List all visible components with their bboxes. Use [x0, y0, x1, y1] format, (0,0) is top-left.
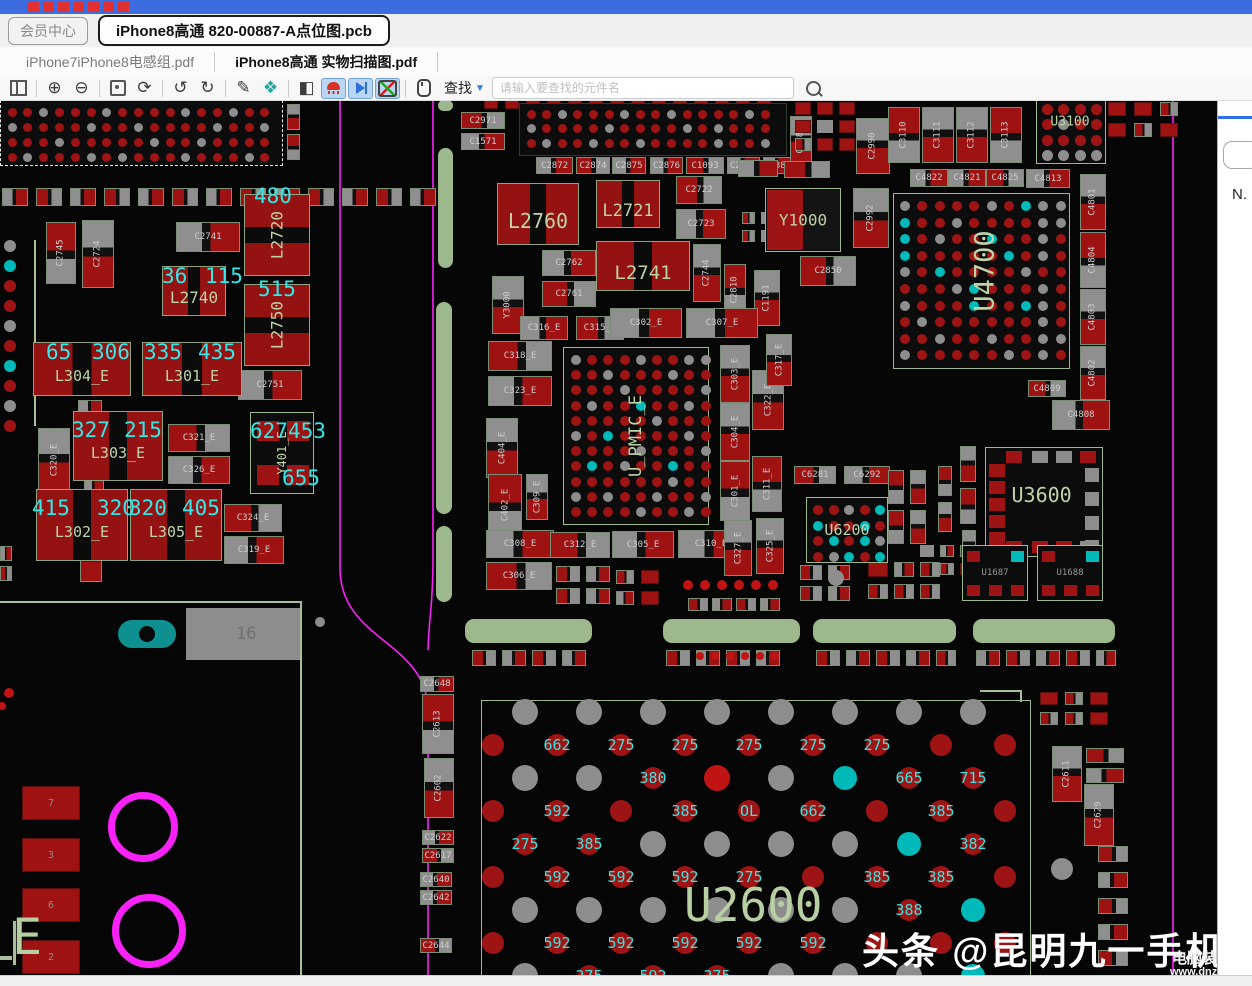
capacitor[interactable] [888, 510, 904, 544]
bga-ball [652, 477, 662, 487]
bga-ball [652, 492, 662, 502]
app-window: 会员中心 iPhone8高通 820-00887-A点位图.pcb iPhone… [0, 0, 1252, 986]
capacitor-C321_E[interactable]: C321_E [168, 424, 230, 452]
capacitor[interactable] [172, 188, 198, 206]
bga-ball [1038, 301, 1048, 311]
capacitor[interactable] [616, 570, 634, 584]
bga-ball [698, 110, 707, 119]
capacitor-C305_E[interactable]: C305_E [612, 531, 674, 558]
bga-ball [482, 932, 504, 954]
bga-ball [813, 505, 823, 515]
bga-ball [1056, 301, 1066, 311]
capacitor-C2971[interactable]: C2971 [461, 112, 505, 129]
watermark-sub2: www.dnzp [1170, 966, 1217, 975]
via [4, 420, 16, 432]
capacitor-C2617[interactable]: C2617 [422, 848, 454, 863]
bga-ball [875, 536, 885, 546]
chevron-down-icon[interactable]: ▼ [475, 83, 485, 94]
ball-value: 275 [735, 736, 762, 754]
bga-ball [701, 477, 711, 487]
bga-ball [668, 416, 678, 426]
capacitor-C2990[interactable]: C2990 [856, 118, 890, 174]
via [828, 570, 844, 586]
bga-ball [668, 401, 678, 411]
mirror-icon[interactable]: ◧ [294, 78, 319, 99]
capacitor-C317_E[interactable]: C317_E [766, 334, 792, 386]
bga-ball [952, 301, 962, 311]
chip-pad [1056, 451, 1072, 463]
capacitor-C303_E[interactable]: C303_E [720, 345, 750, 403]
capacitor[interactable] [800, 586, 822, 601]
capacitor[interactable] [472, 650, 496, 666]
capacitor-C2875[interactable]: C2875 [612, 157, 646, 174]
capacitor-C4822[interactable]: C4822 [910, 169, 948, 187]
capacitor-C4808[interactable]: C4808 [1052, 400, 1110, 430]
capacitor[interactable] [586, 566, 610, 582]
capacitor[interactable] [760, 598, 780, 611]
capacitor[interactable] [868, 584, 888, 599]
capacitor-C4802[interactable]: C4802 [1080, 346, 1106, 400]
capacitor[interactable] [910, 510, 926, 544]
capacitor[interactable] [960, 488, 976, 524]
bga-ball [1042, 104, 1053, 115]
capacitor[interactable] [976, 650, 1000, 666]
measure-value: 435 [198, 340, 236, 364]
capacitor[interactable] [920, 584, 940, 599]
bga-ball [620, 385, 630, 395]
teal-pad [118, 620, 176, 648]
bga-ball [844, 552, 854, 562]
bga-ball [651, 139, 660, 148]
bga-ball [952, 201, 962, 211]
bga-ball [482, 800, 504, 822]
bga-ball [23, 123, 32, 132]
capacitor-C2992[interactable]: C2992 [853, 188, 889, 248]
bga-ball [994, 734, 1016, 756]
bga-ball [1056, 284, 1066, 294]
bga-ball [542, 110, 551, 119]
bga-ball [603, 477, 613, 487]
capacitor[interactable] [1006, 650, 1030, 666]
capacitor-C3110[interactable]: C3110 [888, 107, 920, 163]
chip-pad [967, 551, 980, 562]
capacitor[interactable] [206, 188, 232, 206]
bga-ball [620, 477, 630, 487]
bga-ball [558, 110, 567, 119]
capacitor[interactable] [738, 160, 778, 177]
measure-value: 415 [32, 496, 70, 520]
capacitor[interactable] [1036, 650, 1060, 666]
ball-value: OL [740, 802, 758, 820]
bga-ball [181, 108, 190, 117]
capacitor[interactable] [616, 591, 634, 605]
capacitor[interactable] [940, 563, 954, 575]
capacitor-C3113[interactable]: C3113 [990, 107, 1022, 163]
via [4, 260, 16, 272]
bga-ball [118, 138, 127, 147]
capacitor[interactable] [376, 188, 402, 206]
capacitor[interactable] [938, 502, 952, 532]
via [0, 702, 6, 710]
capacitor-C307_E[interactable]: C307_E [686, 308, 758, 338]
capacitor[interactable] [828, 586, 850, 601]
capacitor-C402_E[interactable]: C402_E [488, 474, 522, 536]
chip-label: U1687 [981, 568, 1008, 578]
bottom-scrollbar[interactable] [0, 975, 1252, 986]
capacitor[interactable] [736, 598, 756, 611]
capacitor-C3112[interactable]: C3112 [956, 107, 988, 163]
capacitor-C4813[interactable]: C4813 [1026, 169, 1070, 188]
rotate-left-icon[interactable]: ↺ [168, 78, 193, 99]
measure-value: 405 [182, 496, 220, 520]
via [700, 580, 710, 590]
bga-ball [768, 765, 794, 791]
capacitor-C2876[interactable]: C2876 [650, 157, 683, 174]
capacitor-C2744[interactable]: C2744 [693, 244, 721, 302]
capacitor-C325_E[interactable]: C325_E [756, 518, 784, 574]
capacitor[interactable] [938, 466, 952, 496]
bga-ball [39, 153, 48, 162]
bga-ball [1038, 218, 1048, 228]
capacitor[interactable] [1065, 692, 1083, 705]
capacitor[interactable] [342, 188, 368, 206]
inductor-L2741[interactable]: L2741 [596, 241, 690, 291]
bga-ball [987, 350, 997, 360]
bga-ball [935, 301, 945, 311]
capacitor[interactable] [712, 598, 732, 611]
capacitor[interactable] [940, 545, 954, 557]
net-highlight-icon[interactable] [321, 78, 346, 99]
pad [839, 102, 855, 115]
bga-ball [229, 138, 238, 147]
brush-icon[interactable]: ✎ [231, 78, 256, 99]
probe-icon[interactable] [375, 78, 400, 99]
bga-ball [229, 153, 238, 162]
bga-ball [1058, 104, 1069, 115]
bga-ball [589, 139, 598, 148]
bga-ball [166, 108, 175, 117]
capacitor-C2762[interactable]: C2762 [542, 250, 596, 276]
capacitor-C2723[interactable]: C2723 [676, 209, 726, 239]
capacitor[interactable] [888, 470, 904, 504]
capacitor[interactable] [1160, 102, 1178, 116]
capacitor[interactable] [846, 650, 870, 666]
capacitor-C324_E[interactable]: C324_E [224, 504, 282, 532]
chip-label: U_PMIC_E [626, 395, 646, 477]
bga-ball [587, 477, 597, 487]
capacitor[interactable] [287, 104, 300, 130]
capacitor[interactable] [800, 565, 822, 580]
search-input[interactable] [492, 77, 794, 99]
bga-ball [245, 138, 254, 147]
capacitor-C309_E[interactable]: C309_E [526, 474, 548, 520]
capacitor-C306_E[interactable]: C306_E [486, 562, 552, 590]
ball-value: 715 [959, 769, 986, 787]
capacitor[interactable] [410, 188, 436, 206]
bga-ball [701, 446, 711, 456]
inductor-L2760[interactable]: L2760 [497, 183, 579, 245]
capacitor[interactable] [586, 588, 610, 604]
capacitor[interactable] [0, 546, 12, 561]
capacitor[interactable] [742, 212, 755, 224]
bga-ball [832, 897, 858, 923]
bga-ball [482, 734, 504, 756]
pad [1108, 102, 1126, 116]
capacitor[interactable] [742, 230, 755, 242]
pad [1040, 692, 1058, 705]
capacitor-C2724[interactable]: C2724 [82, 220, 114, 288]
capacitor-C304_E[interactable]: C304_E [720, 403, 750, 461]
title-bar [0, 0, 1252, 14]
capacitor-C2629[interactable]: C2629 [1084, 784, 1114, 846]
bga-ball [150, 153, 159, 162]
find-label[interactable]: 查找 [444, 78, 472, 98]
palette-icon[interactable]: ❖ [258, 78, 283, 99]
capacitor[interactable] [795, 138, 811, 151]
capacitor[interactable] [287, 134, 300, 160]
bga-ball [1091, 150, 1102, 161]
zoom-in-icon[interactable]: ⊕ [42, 78, 67, 99]
inductor-L2721[interactable]: L2721 [596, 180, 660, 228]
capacitor-C2745[interactable]: C2745 [46, 222, 76, 284]
search-icon[interactable] [806, 81, 821, 96]
bga-ball [603, 401, 613, 411]
capacitor-C2741[interactable]: C2741 [176, 222, 240, 252]
chip-label: U4700 [970, 230, 1001, 311]
bga-ball [1091, 104, 1102, 115]
capacitor[interactable] [1098, 898, 1128, 914]
capacitor-C3111[interactable]: C3111 [922, 107, 954, 163]
bga-ball [620, 355, 630, 365]
ball-value: 275 [799, 736, 826, 754]
capacitor[interactable] [1040, 712, 1058, 725]
capacitor[interactable] [502, 650, 526, 666]
capacitor[interactable] [104, 188, 130, 206]
capacitor[interactable] [562, 650, 586, 666]
tab-inductor-pdf[interactable]: iPhone7iPhone8电感组.pdf [26, 52, 194, 72]
capacitor-C323_E[interactable]: C323_E [488, 376, 552, 406]
bga-ball [994, 866, 1016, 888]
via [726, 652, 734, 660]
capacitor-C2722[interactable]: C2722 [676, 176, 722, 204]
bga-ball [610, 800, 632, 822]
capacitor-C2640[interactable]: C2640 [420, 872, 452, 887]
capacitor[interactable] [1086, 748, 1124, 763]
capacitor[interactable] [816, 650, 840, 666]
capacitor[interactable] [0, 566, 12, 581]
chip-label: U1688 [1056, 568, 1083, 578]
pad [641, 570, 659, 584]
capacitor-C4804[interactable]: C4804 [1080, 232, 1106, 288]
capacitor[interactable] [1134, 123, 1152, 137]
pad [868, 562, 888, 577]
bga-ball [1004, 218, 1014, 228]
test-pad-7[interactable]: 7 [22, 786, 80, 820]
capacitor[interactable] [784, 161, 830, 178]
bga-ball [844, 505, 854, 515]
capacitor-C2644[interactable]: C2644 [420, 938, 452, 953]
capacitor-C318_E[interactable]: C318_E [488, 341, 552, 371]
bga-ball [260, 138, 269, 147]
capacitor-C312_E[interactable]: C312_E [550, 532, 610, 558]
split-view-icon[interactable] [6, 78, 31, 99]
bga-ball [636, 370, 646, 380]
capacitor-C6292[interactable]: C6292 [844, 466, 890, 484]
refresh-icon[interactable]: ⟳ [132, 78, 157, 99]
file-button-row: 会员中心 iPhone8高通 820-00887-A点位图.pcb [0, 14, 1252, 47]
capacitor[interactable] [1065, 712, 1083, 725]
bga-ball [213, 153, 222, 162]
capacitor[interactable] [920, 562, 940, 577]
ball-value: 592 [607, 868, 634, 886]
capacitor[interactable] [688, 598, 708, 611]
panel-button[interactable] [1223, 141, 1252, 169]
measure-value: 515 [258, 277, 296, 301]
bga-ball [684, 401, 694, 411]
capacitor-C1571[interactable]: C1571 [461, 133, 505, 150]
capacitor[interactable] [556, 566, 580, 582]
bga-ball [714, 139, 723, 148]
capacitor-C327_E[interactable]: C327_E [724, 520, 752, 576]
capacitor[interactable] [894, 562, 914, 577]
bga-ball [527, 139, 536, 148]
ground-strip [973, 619, 1115, 643]
capacitor-C2642[interactable]: C2642 [420, 890, 452, 905]
chip-pad [1042, 585, 1055, 596]
bga-ball [994, 800, 1016, 822]
capacitor[interactable] [36, 188, 62, 206]
zoom-out-icon[interactable]: ⊖ [69, 78, 94, 99]
via [4, 340, 16, 352]
bga-ball [213, 108, 222, 117]
pad [505, 101, 519, 109]
capacitor-C2602[interactable]: C2602 [424, 758, 454, 818]
ball-value: 662 [799, 802, 826, 820]
capacitor[interactable] [876, 650, 900, 666]
rotate-right-icon[interactable]: ↻ [195, 78, 220, 99]
via [4, 380, 16, 392]
capacitor[interactable] [138, 188, 164, 206]
capacitor[interactable] [532, 650, 556, 666]
capacitor-C319_E[interactable]: C319_E [224, 536, 284, 564]
capacitor-C404_E[interactable]: C404_E [486, 418, 518, 478]
capacitor-C4809[interactable]: C4809 [1028, 380, 1066, 397]
bga-ball [952, 218, 962, 228]
bga-ball [576, 765, 602, 791]
pcb-file-tab[interactable]: iPhone8高通 820-00887-A点位图.pcb [98, 15, 390, 46]
bga-ball [87, 123, 96, 132]
bga-ball [1058, 135, 1069, 146]
member-center-button[interactable]: 会员中心 [8, 17, 88, 45]
capacitor[interactable] [2, 188, 28, 206]
chip-pad [989, 498, 1005, 511]
capacitor-C2648[interactable]: C2648 [420, 676, 454, 692]
capacitor-C2613[interactable]: C2613 [422, 694, 454, 754]
bga-ball [860, 552, 870, 562]
capacitor[interactable] [910, 470, 926, 504]
capacitor-C4825[interactable]: C4825 [986, 169, 1024, 187]
capacitor-C4803[interactable]: C4803 [1080, 289, 1106, 345]
capacitor-C2751[interactable]: C2751 [238, 370, 302, 400]
measure-value: 215 [124, 418, 162, 442]
capacitor-C2850[interactable]: C2850 [800, 256, 856, 286]
bga-ball [701, 355, 711, 365]
capacitor-C2761[interactable]: C2761 [542, 281, 596, 307]
capacitor[interactable] [1098, 872, 1128, 888]
tab-scan-pdf[interactable]: iPhone8高通 实物扫描图.pdf [235, 52, 417, 72]
capacitor-C2622[interactable]: C2622 [422, 830, 454, 845]
bga-ball [1004, 201, 1014, 211]
capacitor[interactable] [1086, 768, 1124, 783]
capacitor[interactable] [308, 188, 334, 206]
capacitor-C2872[interactable]: C2872 [536, 157, 573, 174]
capacitor-C320_E[interactable]: C320_E [38, 428, 70, 492]
bga-ball [1042, 150, 1053, 161]
capacitor-C4801[interactable]: C4801 [1080, 174, 1106, 230]
capacitor[interactable] [936, 650, 956, 666]
capacitor-C311_E[interactable]: C311_E [752, 456, 782, 512]
diode-check-icon[interactable] [348, 78, 373, 99]
ball-value: 592 [639, 967, 666, 975]
capacitor-C2611[interactable]: C2611 [1052, 746, 1082, 802]
capacitor-C1093[interactable]: C1093 [686, 157, 724, 174]
capacitor-C4821[interactable]: C4821 [948, 169, 986, 187]
ball-value: 592 [543, 802, 570, 820]
pcb-canvas[interactable]: 头条 @昆明九一手机维修 电脑装机 www.dnzp C2745C2724C27… [0, 101, 1217, 975]
capacitor-C326_E[interactable]: C326_E [168, 456, 230, 484]
capacitor-C302_E[interactable]: C302_E [610, 308, 682, 338]
test-pad-3[interactable]: 3 [22, 838, 80, 872]
capacitor[interactable] [894, 584, 914, 599]
capacitor-C301_E[interactable]: C301_E [720, 461, 750, 521]
capacitor[interactable] [1066, 650, 1090, 666]
mouse-mode-icon[interactable] [411, 78, 436, 99]
capacitor[interactable] [960, 446, 976, 482]
capacitor[interactable] [70, 188, 96, 206]
bga-ball [589, 124, 598, 133]
capacitor[interactable] [906, 650, 930, 666]
bga-ball [668, 477, 678, 487]
capacitor-C316_E[interactable]: C316_E [520, 316, 568, 340]
capacitor-C6281[interactable]: C6281 [794, 466, 836, 484]
ball-value: 275 [575, 967, 602, 975]
bga-ball [900, 218, 910, 228]
bga-ball [761, 110, 770, 119]
via [711, 652, 719, 660]
measure-value: 335 [144, 340, 182, 364]
capacitor[interactable] [1098, 846, 1128, 862]
capacitor[interactable] [1096, 650, 1116, 666]
bga-ball [640, 699, 666, 725]
capacitor-C2874[interactable]: C2874 [576, 157, 610, 174]
bga-ball [23, 138, 32, 147]
bga-ball [1056, 234, 1066, 244]
bga-ball [71, 123, 80, 132]
bga-ball [166, 123, 175, 132]
bga-ball [181, 123, 190, 132]
bga-ball [620, 139, 629, 148]
capacitor[interactable] [556, 588, 580, 604]
capacitor-C308_E[interactable]: C308_E [486, 530, 554, 558]
pad [1090, 692, 1108, 705]
capacitor[interactable] [666, 650, 690, 666]
bga-ball [832, 831, 858, 857]
bga-ball [482, 866, 504, 888]
ball-value: 385 [863, 868, 890, 886]
bga-ball [636, 139, 645, 148]
bga-ball [1004, 301, 1014, 311]
fit-view-icon[interactable] [105, 78, 130, 99]
